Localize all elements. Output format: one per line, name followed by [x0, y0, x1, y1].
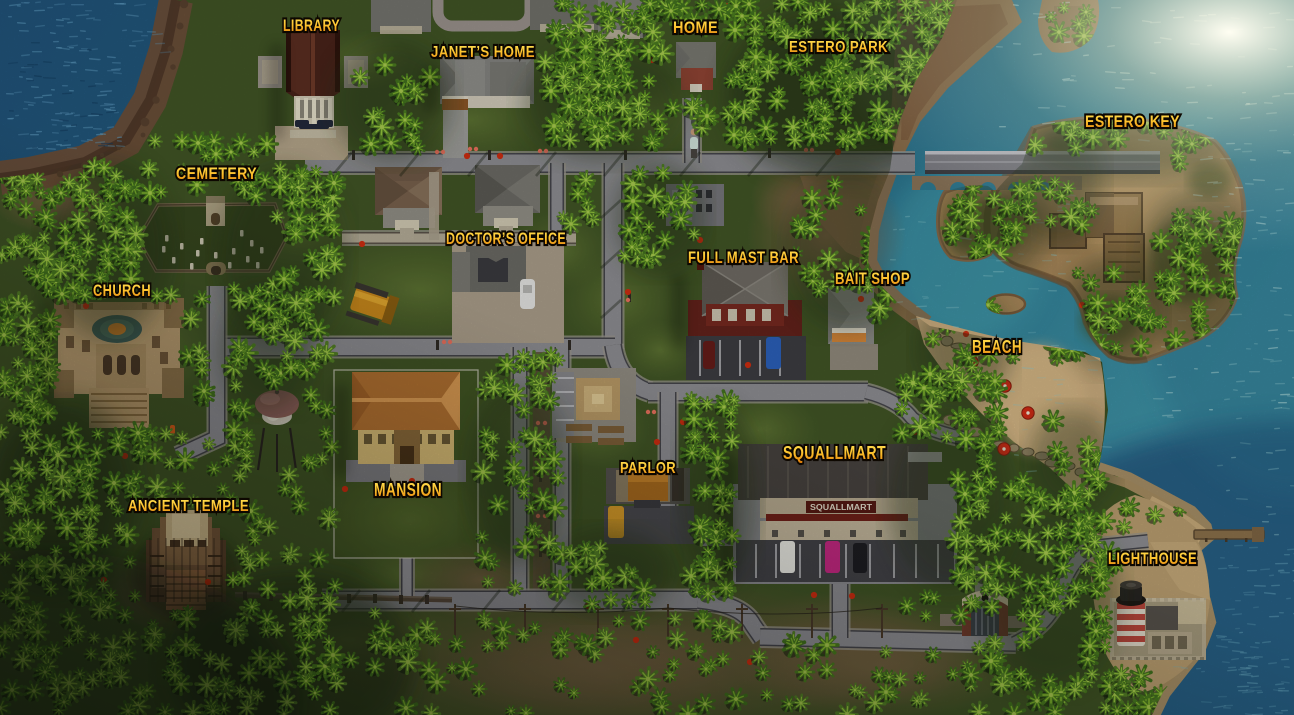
svg-text:BEACH: BEACH — [972, 337, 1022, 357]
svg-text:MANSION: MANSION — [374, 480, 442, 500]
svg-text:DOCTOR’S OFFICE: DOCTOR’S OFFICE — [446, 229, 566, 248]
svg-text:LIGHTHOUSE: LIGHTHOUSE — [1108, 549, 1197, 568]
svg-text:JANET’S HOME: JANET’S HOME — [431, 44, 535, 61]
svg-text:HOME: HOME — [673, 18, 718, 37]
svg-text:PARLOR: PARLOR — [620, 460, 676, 477]
svg-text:ESTERO PARK: ESTERO PARK — [789, 39, 888, 56]
svg-text:LIBRARY: LIBRARY — [283, 16, 340, 35]
svg-text:BAIT SHOP: BAIT SHOP — [835, 269, 910, 288]
svg-text:ANCIENT TEMPLE: ANCIENT TEMPLE — [128, 498, 249, 515]
svg-text:CEMETERY: CEMETERY — [176, 164, 257, 183]
svg-text:CHURCH: CHURCH — [93, 281, 151, 300]
svg-text:ESTERO KEY: ESTERO KEY — [1085, 112, 1180, 131]
svg-text:SQUALLMART: SQUALLMART — [783, 443, 886, 463]
svg-text:FULL MAST BAR: FULL MAST BAR — [688, 248, 799, 267]
